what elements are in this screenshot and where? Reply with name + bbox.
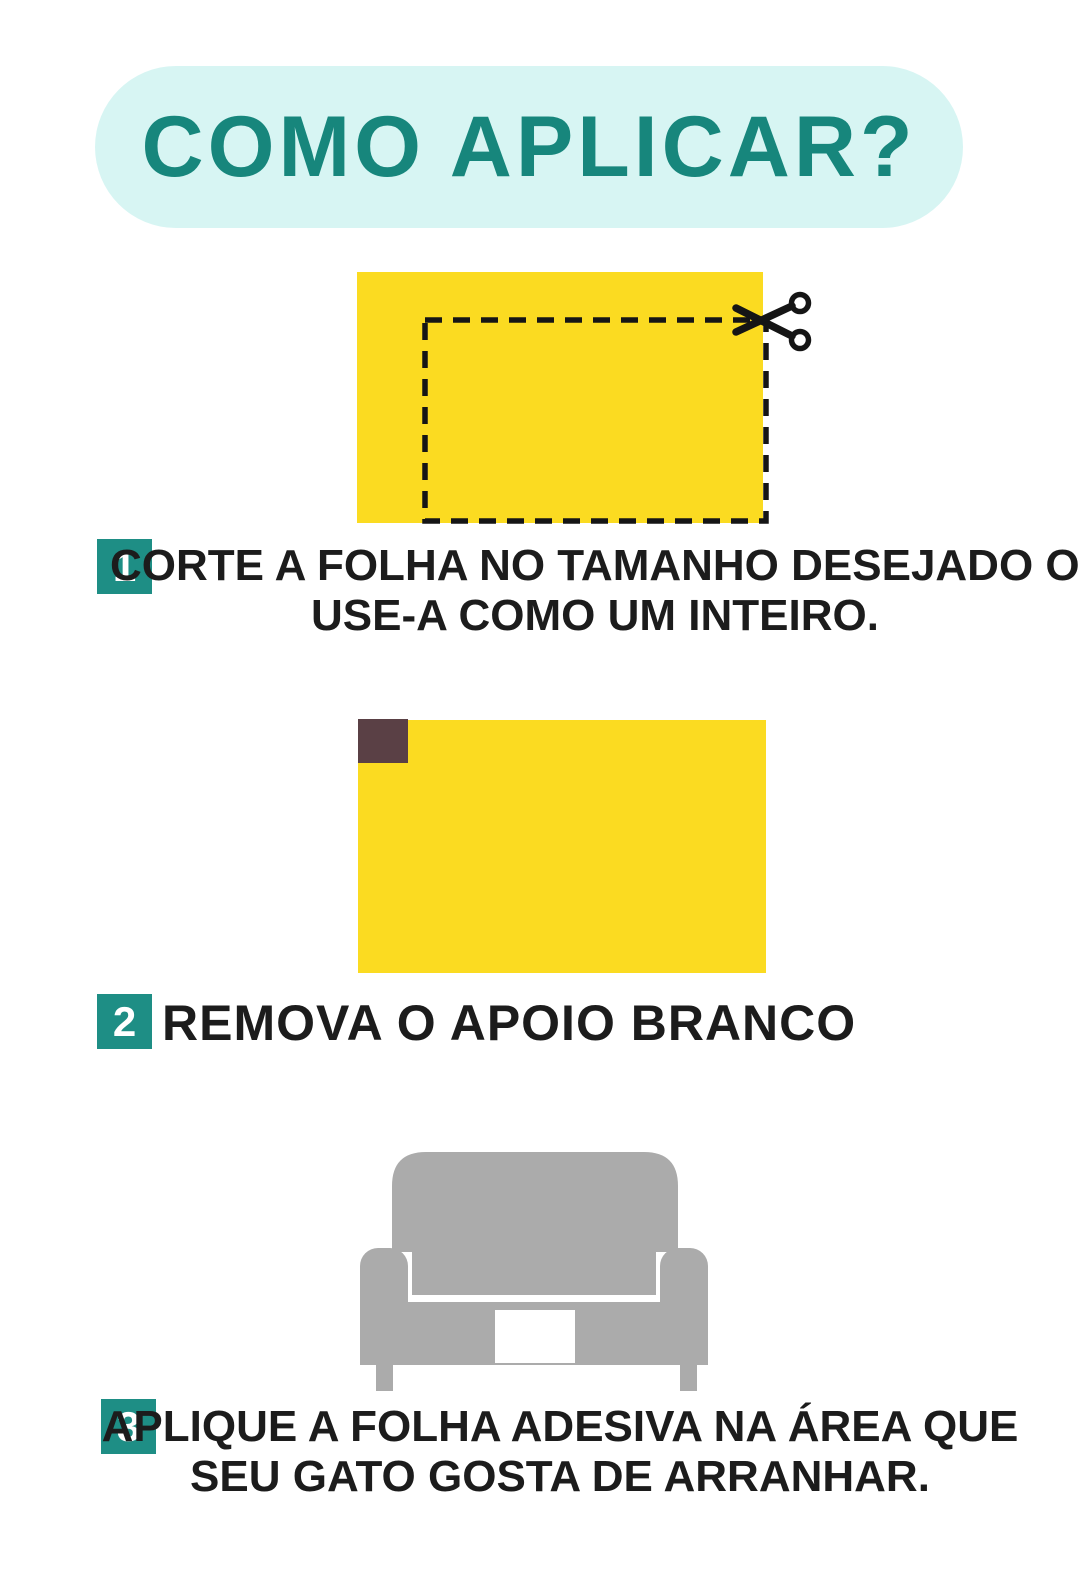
couch-leg-left — [376, 1365, 393, 1391]
backing-corner — [358, 719, 408, 763]
yellow-sheet-1 — [357, 272, 763, 523]
step-2-text: REMOVA O APOIO BRANCO — [162, 996, 856, 1050]
couch-leg-right — [680, 1365, 697, 1391]
step-1-text: CORTE A FOLHA NO TAMANHO DESEJADO OU USE… — [110, 541, 1080, 641]
step-2-badge: 2 — [97, 994, 152, 1049]
step-2-number: 2 — [113, 998, 136, 1046]
cut-sheet-illustration — [340, 262, 820, 534]
yellow-sheet-2 — [358, 720, 766, 973]
adhesive-sheet-on-couch — [495, 1310, 575, 1363]
page-title: COMO APLICAR? — [142, 98, 917, 197]
step-1-line-2: USE-A COMO UM INTEIRO. — [110, 591, 1080, 641]
peel-sheet-illustration — [340, 705, 780, 985]
step-2-line-1: REMOVA O APOIO BRANCO — [162, 996, 856, 1050]
header-pill: COMO APLICAR? — [95, 66, 963, 228]
infographic-canvas: COMO APLICAR? 1 CORTE A FOLHA NO TAMANHO… — [0, 0, 1080, 1583]
step-1-line-1: CORTE A FOLHA NO TAMANHO DESEJADO OU — [110, 541, 1080, 591]
couch-backrest — [392, 1152, 678, 1295]
step-3-line-2: SEU GATO GOSTA DE ARRANHAR. — [60, 1452, 1060, 1502]
couch-illustration — [340, 1140, 740, 1400]
step-3-text: APLIQUE A FOLHA ADESIVA NA ÁREA QUE SEU … — [60, 1402, 1060, 1502]
step-3-line-1: APLIQUE A FOLHA ADESIVA NA ÁREA QUE — [60, 1402, 1060, 1452]
